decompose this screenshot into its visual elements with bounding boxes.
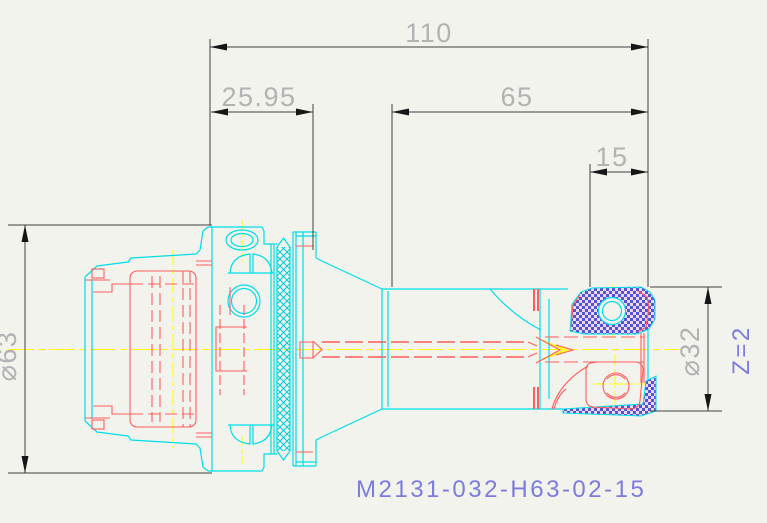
dim-text-overall-length: 110 (405, 18, 453, 48)
clamping-groove-hatch (278, 247, 291, 451)
cad-drawing-viewport: 110 25.95 65 15 ⌀63 ⌀32 Z=2 M2131-032-H6… (0, 0, 767, 523)
dim-text-projection-length: 65 (500, 82, 533, 112)
cad-drawing-canvas: 110 25.95 65 15 ⌀63 ⌀32 Z=2 M2131-032-H6… (0, 0, 767, 523)
drawing-background (0, 0, 767, 523)
dim-text-insert-length: 15 (595, 142, 628, 172)
flute-count-label: Z=2 (728, 325, 755, 375)
dim-text-gauge-length: 25.95 (221, 82, 296, 112)
dim-text-shank-diameter: ⌀63 (0, 331, 22, 382)
part-number-label: M2131-032-H63-02-15 (356, 476, 646, 503)
dim-text-cutter-diameter: ⌀32 (675, 326, 705, 377)
